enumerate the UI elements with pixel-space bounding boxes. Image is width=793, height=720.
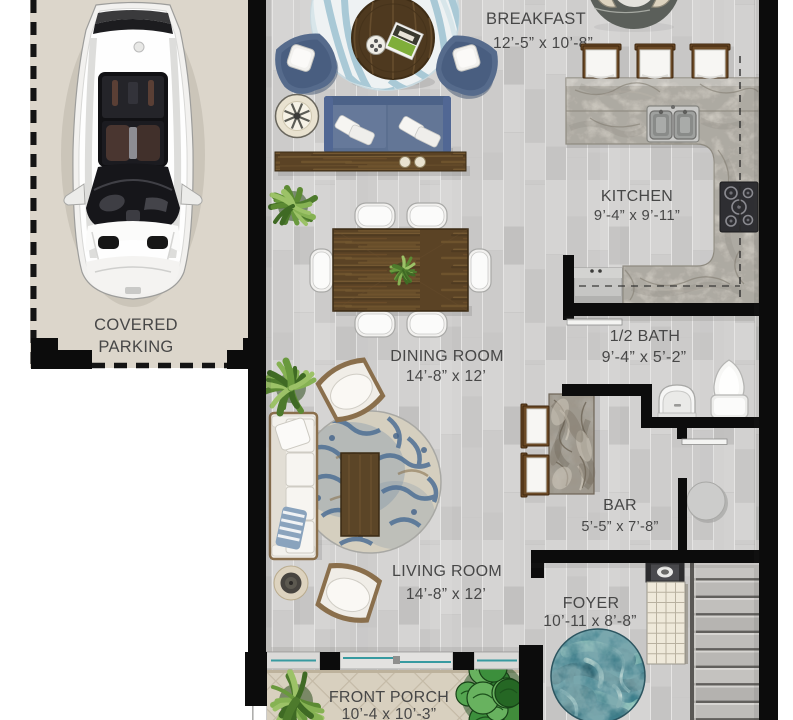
svg-text:FOYER: FOYER: [563, 595, 620, 612]
svg-text:BAR: BAR: [603, 497, 637, 514]
svg-text:14’-8” x 12’: 14’-8” x 12’: [406, 368, 486, 385]
svg-text:PARKING: PARKING: [98, 338, 173, 356]
svg-text:KITCHEN: KITCHEN: [601, 188, 673, 205]
svg-text:LIVING ROOM: LIVING ROOM: [392, 563, 502, 580]
svg-text:1/2 BATH: 1/2 BATH: [610, 328, 681, 345]
svg-text:10’-11 x 8’-8”: 10’-11 x 8’-8”: [543, 613, 637, 630]
svg-text:COVERED: COVERED: [94, 316, 178, 334]
svg-text:12’-5” x 10’-8”: 12’-5” x 10’-8”: [493, 35, 593, 52]
svg-text:DINING ROOM: DINING ROOM: [390, 348, 504, 365]
svg-text:5’-5” x 7’-8”: 5’-5” x 7’-8”: [581, 519, 658, 535]
svg-text:14’-8” x 12’: 14’-8” x 12’: [406, 586, 486, 603]
svg-text:BREAKFAST: BREAKFAST: [486, 10, 586, 28]
svg-text:FRONT PORCH: FRONT PORCH: [329, 689, 449, 706]
svg-text:10’-4 x 10’-3”: 10’-4 x 10’-3”: [342, 706, 437, 720]
svg-text:9’-4” x 5’-2”: 9’-4” x 5’-2”: [602, 349, 687, 366]
svg-text:9’-4” x 9’-11”: 9’-4” x 9’-11”: [594, 208, 680, 224]
